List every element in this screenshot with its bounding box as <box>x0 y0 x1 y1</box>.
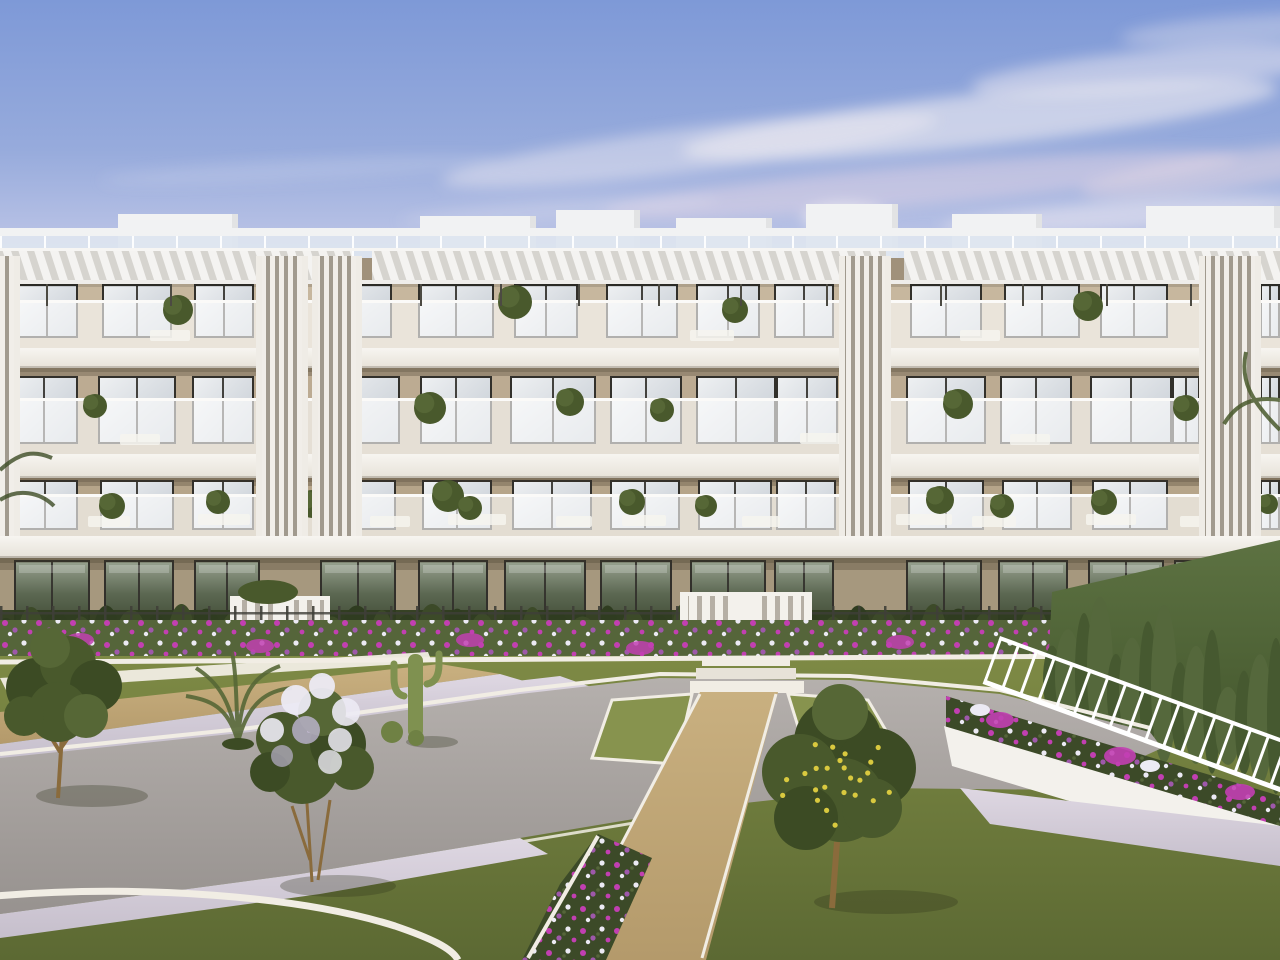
window-reflection <box>325 565 391 573</box>
lemon-fruit <box>815 798 820 803</box>
pergola-shadow <box>0 284 1280 287</box>
lemon-fruit <box>843 751 848 756</box>
balcony-plant-highlight <box>619 490 635 506</box>
window-reflection <box>109 565 169 573</box>
tower-flank <box>1255 256 1261 536</box>
lemon-fruit <box>848 775 853 780</box>
balcony-plant-highlight <box>695 496 709 510</box>
fence-rail <box>0 612 1140 615</box>
tower-flank <box>356 256 362 536</box>
slab-band <box>0 348 1280 368</box>
lemon-fruit <box>837 758 842 763</box>
lemon-fruit <box>857 778 862 783</box>
lemon-fruit <box>887 790 892 795</box>
balcony-plant-highlight <box>414 393 434 413</box>
lemon-fruit <box>813 742 818 747</box>
tower-flank <box>839 256 845 536</box>
terrace-furniture-piece <box>690 330 734 341</box>
terrace-furniture-piece <box>370 516 410 527</box>
lemon-fruit <box>841 790 846 795</box>
roof-parapet <box>0 228 1280 236</box>
lemon-fruit <box>876 745 881 750</box>
balcony-plant-highlight <box>163 296 182 315</box>
render-stage: Dusk 3D architectural rendering of a mod… <box>0 0 1280 960</box>
pergola-post <box>1190 284 1192 306</box>
terrace-furniture-piece <box>1010 434 1050 445</box>
pergola-post <box>420 284 422 306</box>
louver-screen <box>1205 256 1255 536</box>
balcony-plant-highlight <box>722 298 738 314</box>
lemon-fruit <box>780 793 785 798</box>
pergola-post <box>740 284 742 306</box>
tower-flank <box>1199 256 1205 536</box>
pergola-post <box>1106 284 1108 306</box>
lemon-fruit <box>868 760 873 765</box>
pergola-canopy <box>372 250 886 282</box>
slab-band <box>0 454 1280 478</box>
pergola-edge-beam <box>0 280 1280 284</box>
pergola-post <box>940 284 942 306</box>
balcony-plant-highlight <box>1091 490 1107 506</box>
pergola-top-beam <box>0 248 1280 251</box>
balcony-plant-highlight <box>650 399 665 414</box>
terrace-furniture-piece <box>150 330 190 341</box>
lemon-fruit <box>825 766 830 771</box>
lemon-fruit <box>865 770 870 775</box>
balcony-plant-highlight <box>556 389 573 406</box>
pergola-post <box>500 284 502 306</box>
pergola-post <box>1022 284 1024 306</box>
pergola-post <box>46 284 48 306</box>
window-reflection <box>1003 565 1063 573</box>
lemon-fruit <box>853 793 858 798</box>
tower-flank <box>885 256 891 536</box>
balcony-plant-highlight <box>943 390 962 409</box>
window-reflection <box>509 565 581 573</box>
pergola-post <box>658 284 660 306</box>
terrace-furniture-piece <box>622 515 666 526</box>
lemon-fruit <box>813 787 818 792</box>
terrace-furniture-piece <box>742 516 780 527</box>
balcony-balustrade-floor2 <box>0 398 1280 454</box>
terrace-furniture-piece <box>972 516 1016 527</box>
slab-shadow <box>0 556 1280 563</box>
slab-shadow <box>0 366 1280 372</box>
slab-shadow <box>0 476 1280 482</box>
gate-top-plant <box>238 580 298 604</box>
terrace-furniture-piece <box>1086 514 1136 525</box>
apartment-building-render: Dusk 3D architectural rendering of a mod… <box>0 0 1280 960</box>
tree-shadow <box>36 785 148 807</box>
balcony-plant-highlight <box>83 395 98 410</box>
tower-flank <box>256 256 262 536</box>
balcony-plant-highlight <box>1073 292 1092 311</box>
window-reflection <box>911 565 977 573</box>
pergola-post <box>578 284 580 306</box>
lemon-fruit <box>802 771 807 776</box>
tower-flank <box>302 256 308 536</box>
louver-screen <box>318 256 356 536</box>
terrace-furniture-piece <box>556 516 592 527</box>
lemon-fruit <box>784 777 789 782</box>
lemon-fruit <box>822 785 827 790</box>
balcony-plant-highlight <box>1173 396 1189 412</box>
terrace-furniture-piece <box>120 434 160 445</box>
lemon-fruit <box>830 745 835 750</box>
terrace-furniture-piece <box>198 514 250 525</box>
balcony-plant-highlight <box>99 494 115 510</box>
terrace-furniture-piece <box>896 514 952 525</box>
balcony-plant-highlight <box>458 497 473 512</box>
pergola-post <box>826 284 828 306</box>
balcony-plant-highlight <box>206 491 221 506</box>
entrance-steps <box>690 656 804 693</box>
tower-flank <box>312 256 318 536</box>
terrace-furniture-piece <box>800 433 844 444</box>
louver-screen <box>262 256 302 536</box>
lemon-fruit <box>871 798 876 803</box>
louver-screen <box>845 256 885 536</box>
window-reflection <box>199 565 255 573</box>
lemon-fruit <box>814 766 819 771</box>
lemon-fruit <box>824 808 829 813</box>
slab-band <box>0 536 1280 558</box>
balcony-plant-highlight <box>926 487 943 504</box>
lemon-fruit <box>833 823 838 828</box>
window-reflection <box>423 565 483 573</box>
pergola-post <box>170 284 172 306</box>
window-reflection <box>779 565 829 573</box>
window-reflection <box>605 565 667 573</box>
balcony-plant-highlight <box>432 481 452 501</box>
window-reflection <box>19 565 85 573</box>
window-reflection <box>695 565 761 573</box>
lemon-fruit <box>842 765 847 770</box>
balcony-plant-highlight <box>990 495 1005 510</box>
terrace-furniture-piece <box>960 330 1000 341</box>
